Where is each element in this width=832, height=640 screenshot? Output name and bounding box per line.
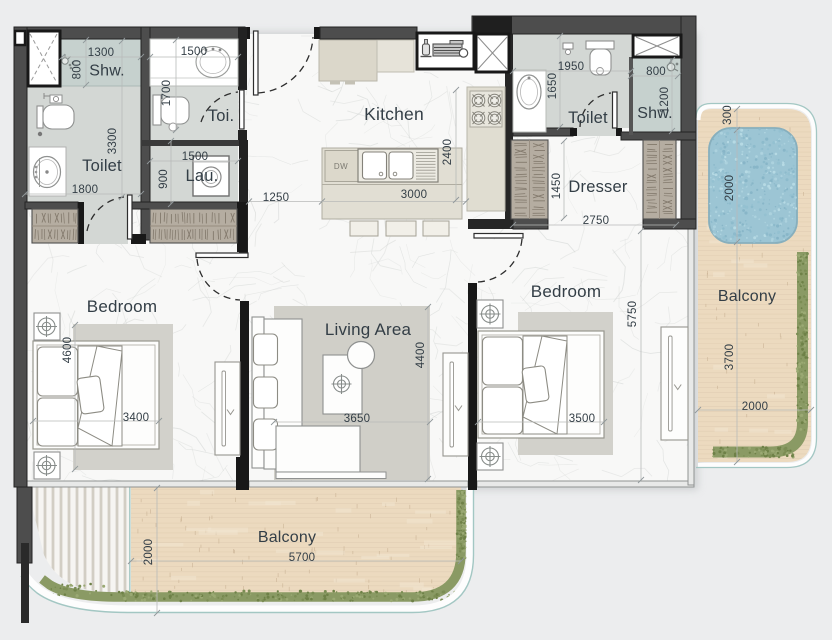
svg-text:1500: 1500 — [182, 151, 208, 163]
svg-text:Bedroom: Bedroom — [531, 282, 601, 301]
svg-text:800: 800 — [72, 60, 84, 80]
svg-text:Living Area: Living Area — [325, 320, 412, 339]
svg-text:1800: 1800 — [72, 184, 98, 196]
svg-text:2000: 2000 — [742, 401, 768, 413]
svg-text:3650: 3650 — [344, 413, 370, 425]
svg-text:900: 900 — [158, 169, 170, 189]
svg-text:Toi.: Toi. — [208, 107, 234, 125]
svg-text:4600: 4600 — [62, 337, 74, 363]
svg-text:1300: 1300 — [88, 47, 114, 59]
svg-text:3000: 3000 — [401, 189, 427, 201]
svg-text:3700: 3700 — [724, 344, 736, 370]
svg-text:Toilet: Toilet — [568, 109, 608, 127]
svg-text:2000: 2000 — [143, 539, 155, 565]
svg-text:Balcony: Balcony — [258, 529, 316, 546]
svg-text:1250: 1250 — [263, 192, 289, 204]
svg-text:Balcony: Balcony — [718, 288, 776, 305]
svg-text:Dresser: Dresser — [568, 178, 627, 196]
svg-text:1950: 1950 — [558, 61, 584, 73]
svg-text:1700: 1700 — [161, 80, 173, 106]
svg-text:3300: 3300 — [107, 128, 119, 154]
svg-text:1650: 1650 — [547, 73, 559, 99]
svg-text:5700: 5700 — [289, 552, 315, 564]
svg-text:3500: 3500 — [569, 413, 595, 425]
svg-text:1450: 1450 — [551, 173, 563, 199]
svg-text:800: 800 — [646, 66, 666, 78]
svg-text:2000: 2000 — [724, 175, 736, 201]
svg-text:Shw.: Shw. — [89, 63, 125, 80]
svg-text:Toilet: Toilet — [82, 157, 122, 175]
svg-text:Bedroom: Bedroom — [87, 297, 157, 316]
svg-text:Lau.: Lau. — [186, 167, 219, 185]
svg-text:300: 300 — [722, 105, 734, 125]
svg-text:1500: 1500 — [181, 46, 207, 58]
svg-text:2400: 2400 — [442, 139, 454, 165]
svg-text:Kitchen: Kitchen — [364, 104, 424, 124]
svg-text:1200: 1200 — [659, 87, 671, 113]
svg-text:4400: 4400 — [415, 342, 427, 368]
svg-text:5750: 5750 — [627, 301, 639, 327]
svg-text:3400: 3400 — [123, 412, 149, 424]
svg-text:2750: 2750 — [583, 215, 609, 227]
svg-text:DW: DW — [334, 162, 348, 171]
